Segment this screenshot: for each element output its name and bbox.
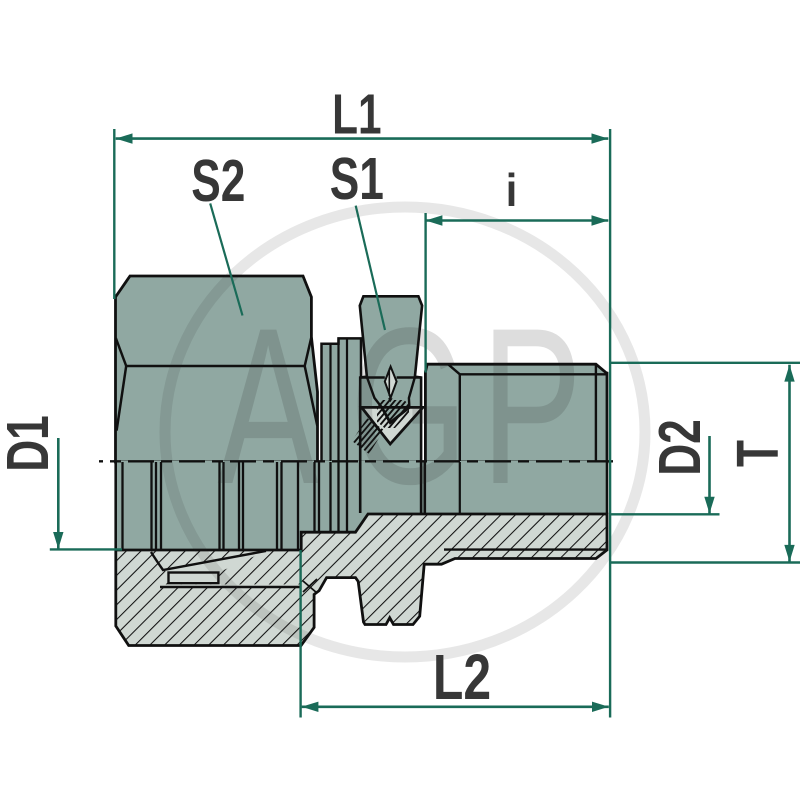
- svg-text:T: T: [726, 440, 792, 467]
- svg-text:D1: D1: [0, 415, 62, 472]
- svg-text:A: A: [217, 282, 318, 531]
- svg-text:L2: L2: [433, 642, 491, 713]
- svg-text:D2: D2: [648, 419, 714, 476]
- svg-text:S2: S2: [191, 149, 245, 215]
- svg-text:i: i: [506, 165, 518, 217]
- svg-text:P: P: [481, 282, 582, 531]
- svg-text:S1: S1: [330, 147, 384, 213]
- svg-text:G: G: [350, 282, 468, 531]
- svg-text:L1: L1: [332, 83, 381, 146]
